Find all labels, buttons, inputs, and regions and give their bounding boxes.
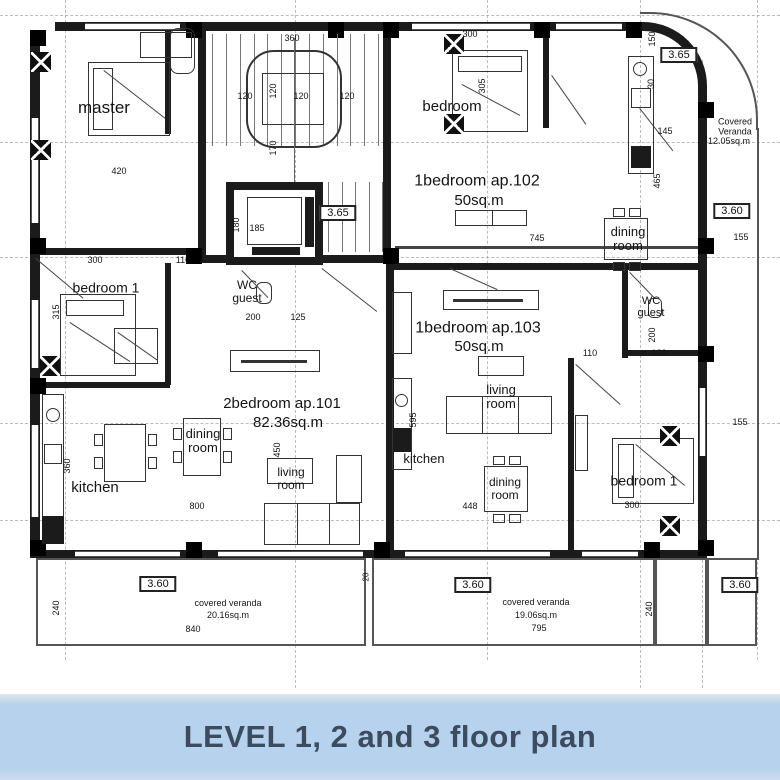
column [374,542,390,558]
sofa-divider [518,397,519,433]
stove-icon [393,428,411,452]
veranda-label: Covered Veranda [713,117,758,136]
dim-label: 745 [529,234,544,244]
veranda-edge [757,128,759,560]
window [85,23,180,30]
line [241,360,307,363]
chair-icon [509,456,521,465]
chair-icon [493,456,505,465]
dim-label: 305 [478,78,488,93]
window [218,551,363,557]
room-label-bedroom-ap102: bedroom [422,99,481,115]
veranda-area: 19.06sq.m [515,611,557,621]
line [395,246,707,249]
column-x-icon [40,356,60,376]
stove-icon [44,444,62,464]
bathtub-icon [170,28,195,74]
wall [698,102,707,558]
title-banner: LEVEL 1, 2 and 3 floor plan [0,694,780,780]
dim-label: 360 [284,34,299,44]
stair-core-wall [198,22,206,263]
column [626,22,642,38]
veranda-cell [655,558,707,646]
room-label-dining-ap102: dining room [611,225,646,253]
column [30,378,46,394]
dim-label: 125 [290,313,305,323]
elevation-marker: 3.65 [319,205,356,221]
sofa-divider [329,504,330,544]
chair-icon [629,208,641,217]
room-label-master: master [78,99,130,117]
stair-step [364,34,365,146]
dim-label: 300 [624,501,639,511]
chair-icon [94,434,103,446]
column [534,22,550,38]
apartment-label: 2bedroom ap.101 [223,396,341,412]
dim-label: 315 [52,304,62,319]
floor-plan: masterbedroombedroom 1bedroom 1kitchenki… [0,0,780,660]
room-label-kitchen-left: kitchen [71,480,119,496]
dim-label: 200 [648,327,658,342]
room-label-dining-ap101: dining room [186,427,221,455]
sofa-divider [297,504,298,544]
window [31,118,39,223]
chair-icon [613,208,625,217]
room-label-living-ap103: living room [486,383,516,411]
stair-step [240,34,241,146]
stair-step [369,182,370,252]
dim-label: 180 [232,217,242,232]
room-label-living-ap101: living room [277,466,304,492]
elevation-marker: 3.60 [721,577,758,593]
dim-label: 240 [645,601,655,616]
wall [30,248,202,255]
veranda-label: covered veranda [502,598,569,608]
stair-core-wall [383,22,391,263]
dim-label: 595 [409,412,419,427]
room-label-wc-guest-right: WC guest [638,296,665,320]
column [698,540,714,556]
page: masterbedroombedroom 1bedroom 1kitchenki… [0,0,780,780]
dim-label: 110 [583,349,597,359]
chair-icon [493,514,505,523]
stair-step [226,34,227,146]
coffee-table-icon [478,356,524,376]
apartment-area: 82.36sq.m [253,415,323,431]
dim-label: 200 [245,313,260,323]
column-x-icon [444,34,464,54]
sofa-divider [482,397,483,433]
window [556,23,622,30]
room-label-dining-ap103: dining room [489,476,521,502]
fridge-icon [42,516,64,544]
window [699,388,706,456]
elevation-marker: 3.65 [660,47,697,63]
chair-icon [173,451,182,463]
elevation-marker: 3.60 [454,577,491,593]
column [644,542,660,558]
dim-label: 465 [653,173,663,188]
dim-label: 30 [647,79,657,89]
stair-step [378,34,379,146]
wall [30,382,170,388]
dim-label: 420 [111,167,126,177]
dim-label: 360 [63,458,73,473]
dim-label: 300 [87,256,102,266]
dim-label: 300 [462,30,477,40]
dim-label: 840 [185,625,200,635]
sink-icon [46,408,60,422]
sofa-icon [455,210,527,226]
room-label-bedroom1-right: bedroom 1 [611,473,678,488]
dim-label: 150 [648,31,658,46]
apartment-area: 50sq.m [454,193,503,209]
chair-icon [509,514,521,523]
veranda-cell [707,558,757,646]
wall [622,270,628,358]
dim-label: 120 [293,92,308,102]
veranda-label: covered veranda [194,599,261,609]
column [383,248,399,264]
window [31,425,39,517]
column [30,30,46,46]
column-x-icon [660,516,680,536]
wall [305,197,314,247]
outline [618,444,634,498]
outline [392,292,412,354]
column-x-icon [444,114,464,134]
dim-label: 185 [249,224,264,234]
dim-label: 120 [269,83,279,98]
column [698,102,714,118]
sofa-icon [336,455,362,503]
column [383,22,399,38]
dim-label: 800 [189,502,204,512]
stove-icon [631,88,651,108]
dim-label: 795 [531,624,546,634]
door-swing-icon [551,75,586,125]
stair-step [382,182,383,252]
sofa-divider [492,211,493,225]
window [31,300,39,368]
column [30,238,46,254]
veranda-area: 12.05sq.m [708,137,750,147]
column-x-icon [31,140,51,160]
fridge-icon [631,146,651,168]
chair-icon [173,428,182,440]
stair-step [350,34,351,146]
room-label-wc-guest-left: WC guest [232,279,261,305]
column [698,346,714,362]
kitchen-table-icon [104,424,146,482]
dim-label: 145 [657,127,672,137]
column-x-icon [31,52,51,72]
chair-icon [629,262,641,271]
elevation-marker: 3.60 [139,576,176,592]
dim-label: 240 [52,600,62,615]
outline [66,300,124,316]
line [453,299,523,302]
wall [252,247,300,255]
outline [458,56,522,72]
chair-icon [94,457,103,469]
dim-label: 155 [732,418,747,428]
apartment-area: 50sq.m [454,339,503,355]
apartment-label: 1bedroom ap.103 [415,319,540,336]
door-swing-icon [321,268,377,312]
room-label-kitchen-right: kitchen [403,452,444,466]
chair-icon [148,434,157,446]
dim-label: 120 [339,92,354,102]
chair-icon [148,457,157,469]
sink-icon [395,394,408,407]
dresser-icon [575,415,588,471]
sofa-icon [264,503,360,545]
column-x-icon [660,426,680,446]
chair-icon [223,428,232,440]
wall [568,358,574,552]
window [75,551,180,557]
veranda-area: 20.16sq.m [207,611,249,621]
chair-icon [613,262,625,271]
dim-label: 180 [651,349,666,359]
chair-icon [223,451,232,463]
door-swing-icon [450,268,498,290]
room-label-bedroom1-left: bedroom 1 [73,280,140,295]
door-swing-icon [575,364,620,405]
wall [165,263,171,385]
elevator-cab [247,197,302,245]
wall [391,263,707,270]
dim-label: 450 [273,442,283,457]
column [698,238,714,254]
dim-label: 120 [237,92,252,102]
dim-label: 155 [733,233,748,243]
dim-label: 110 [176,256,190,266]
window [405,551,550,557]
sink-icon [633,62,647,76]
plan-title: LEVEL 1, 2 and 3 floor plan [184,719,597,755]
dim-label: 20 [363,573,372,582]
dim-label: 170 [269,140,279,155]
column [186,542,202,558]
stair-step [212,34,213,146]
apartment-label: 1bedroom ap.102 [414,172,539,189]
window [582,551,638,557]
dim-label: 448 [462,502,477,512]
elevation-marker: 3.60 [713,203,750,219]
